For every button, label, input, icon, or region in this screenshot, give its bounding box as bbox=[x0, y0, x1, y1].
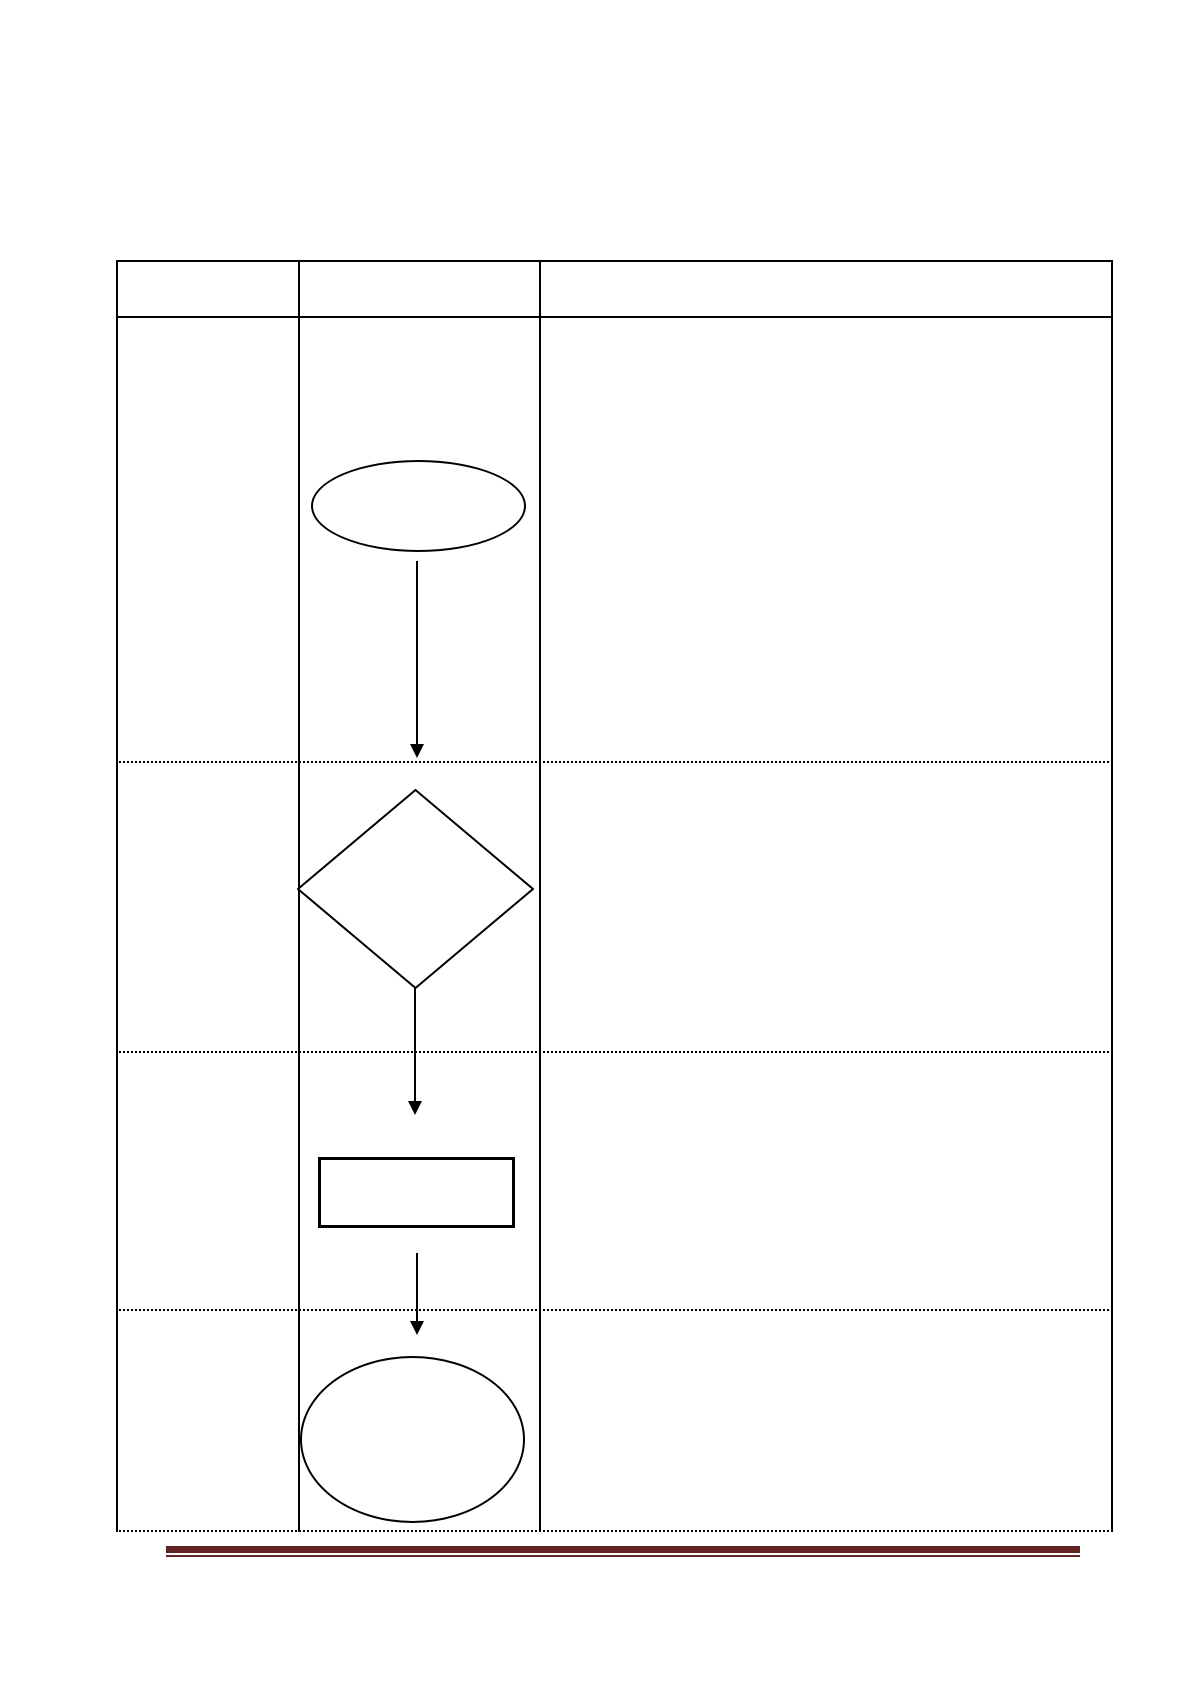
arrow-down-connector-2 bbox=[408, 988, 422, 1115]
arrow-head-icon bbox=[408, 1101, 422, 1115]
header-cell-3 bbox=[541, 262, 1111, 316]
header-cell-2 bbox=[300, 262, 539, 316]
start-terminator-shape bbox=[311, 460, 526, 552]
table-left-border bbox=[116, 260, 118, 1532]
end-terminator-shape bbox=[300, 1356, 525, 1523]
footer-rule-thin bbox=[166, 1555, 1080, 1557]
header-cell-1 bbox=[118, 262, 298, 316]
process-rectangle-shape bbox=[318, 1157, 515, 1228]
arrow-shaft bbox=[414, 988, 416, 1103]
document-table bbox=[116, 260, 1113, 1532]
footer-rule-thick bbox=[166, 1546, 1080, 1553]
arrow-shaft bbox=[416, 561, 418, 746]
table-column-divider-2 bbox=[539, 260, 541, 1532]
table-row-divider-dotted-3 bbox=[116, 1309, 1113, 1311]
arrow-head-icon bbox=[410, 1321, 424, 1335]
decision-diamond-svg bbox=[297, 789, 534, 989]
document-page bbox=[0, 0, 1192, 1685]
arrow-down-connector-3 bbox=[410, 1253, 424, 1335]
decision-diamond-shape bbox=[297, 789, 534, 989]
table-header-bottom-border bbox=[116, 316, 1113, 318]
arrow-shaft bbox=[416, 1253, 418, 1323]
arrow-head-icon bbox=[410, 744, 424, 758]
table-row-divider-dotted-1 bbox=[116, 761, 1113, 763]
table-right-border bbox=[1111, 260, 1113, 1532]
table-row-divider-dotted-2 bbox=[116, 1051, 1113, 1053]
arrow-down-connector-1 bbox=[410, 561, 424, 758]
table-bottom-border-dotted bbox=[116, 1530, 1113, 1532]
